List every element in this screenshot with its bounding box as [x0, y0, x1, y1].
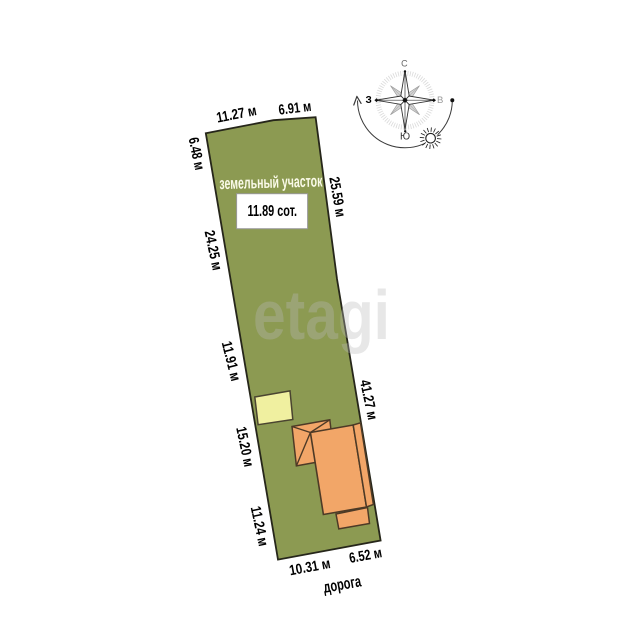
svg-text:В: В: [437, 95, 443, 106]
svg-text:дорога: дорога: [322, 573, 362, 596]
svg-text:24.25 м: 24.25 м: [201, 229, 225, 272]
svg-text:земельный участок: земельный участок: [219, 172, 323, 193]
svg-text:6.52 м: 6.52 м: [348, 545, 383, 567]
svg-text:11.89 сот.: 11.89 сот.: [248, 203, 298, 220]
svg-text:6.91 м: 6.91 м: [278, 99, 313, 119]
svg-text:10.31 м: 10.31 м: [288, 556, 332, 579]
svg-text:11.91 м: 11.91 м: [218, 340, 243, 383]
svg-text:11.24 м: 11.24 м: [247, 505, 271, 548]
svg-text:15.20 м: 15.20 м: [232, 425, 256, 468]
svg-text:6.48 м: 6.48 м: [185, 136, 208, 172]
svg-text:Ю: Ю: [400, 132, 410, 143]
svg-text:З: З: [365, 95, 371, 106]
svg-text:etagi: etagi: [253, 276, 390, 354]
svg-text:11.27 м: 11.27 м: [215, 103, 258, 126]
svg-text:С: С: [401, 58, 408, 68]
